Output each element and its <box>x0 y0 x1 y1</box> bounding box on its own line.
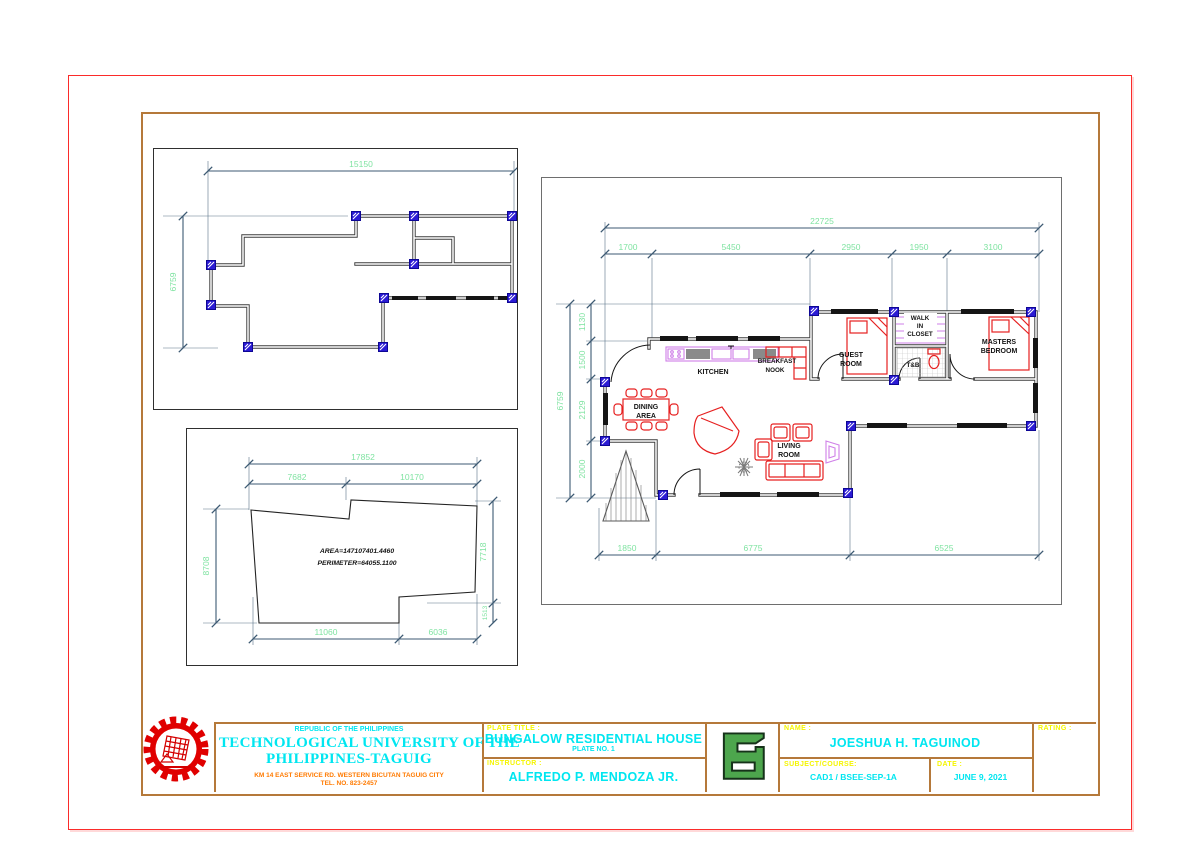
plan-extension-lines <box>556 222 1039 561</box>
lot-plan-panel: 17852 7682 10170 8708 7718 1513 11060 60… <box>186 428 518 666</box>
outline-walls <box>211 216 512 347</box>
dim-lot-left: 8708 <box>201 556 211 575</box>
label-masters-2: BEDROOM <box>981 348 1018 355</box>
lot-area-text: AREA=147107401.4460 <box>319 548 394 555</box>
dim-lot-bottom-right: 6036 <box>429 627 448 637</box>
dim-lot-right: 7718 <box>478 542 488 561</box>
university-name-2: PHILIPPINES-TAGUIG <box>219 751 479 768</box>
dim-lot-right-small: 1513 <box>482 605 489 620</box>
label-masters-1: MASTERS <box>982 339 1017 346</box>
label-dining-1: DINING <box>634 404 659 411</box>
dim-left-seg4: 2000 <box>577 459 587 478</box>
plant <box>735 458 753 476</box>
university-name-1: TECHNOLOGICAL UNIVERSITY OF THE <box>219 735 479 752</box>
subject-value: CAD1 / BSEE-SEP-1A <box>778 772 929 782</box>
lot-perimeter-text: PERIMETER=64055.1100 <box>317 560 396 567</box>
floor-plan-panel: 22725 1700 5450 2950 1950 3100 6759 1130… <box>541 177 1062 605</box>
tree <box>603 451 649 521</box>
date-label: DATE : <box>937 761 962 768</box>
dim-left-seg2: 1500 <box>577 350 587 369</box>
dim-lot-top-right: 10170 <box>400 472 424 482</box>
outline-column-markers <box>207 212 517 352</box>
plate-title: BUNGALOW RESIDENTIAL HOUSE <box>482 732 705 746</box>
label-tb: T&B <box>907 362 920 369</box>
cad-sheet: 15150 6759 <box>0 0 1200 848</box>
g-logo <box>713 726 771 788</box>
dim-top-seg1: 1700 <box>619 242 638 252</box>
dim-bottom-seg2: 6775 <box>744 543 763 553</box>
plate-no: PLATE NO. 1 <box>482 746 705 753</box>
label-breakfast: BREAKFAST <box>758 358 797 365</box>
dim-top-seg2: 5450 <box>722 242 741 252</box>
dim-lot-top-total: 17852 <box>351 452 375 462</box>
label-living-1: LIVING <box>777 443 801 450</box>
label-dining-2: AREA <box>636 413 656 420</box>
rating-label: RATING : <box>1038 725 1072 732</box>
instructor-label: INSTRUCTOR : <box>487 760 542 767</box>
dim-top-seg3: 2950 <box>842 242 861 252</box>
dim-plan-left-total: 6759 <box>555 391 565 410</box>
label-guest-1: GUEST <box>839 352 864 359</box>
dim-top-seg4: 1950 <box>910 242 929 252</box>
plate-title-label: PLATE TITLE : <box>487 725 540 732</box>
university-address: KM 14 EAST SERVICE RD. WESTERN BICUTAN T… <box>219 772 479 779</box>
dim-bottom-seg1: 1850 <box>618 543 637 553</box>
dim-lot-top-left: 7682 <box>288 472 307 482</box>
dim-bottom-seg3: 6525 <box>935 543 954 553</box>
tv-console <box>826 441 839 463</box>
university-tel: TEL. NO. 823-2457 <box>219 780 479 787</box>
plan-column-markers <box>601 307 1036 500</box>
dim-lot-bottom-left: 11060 <box>314 627 337 637</box>
republic-line: REPUBLIC OF THE PHILIPPINES <box>224 726 474 733</box>
instructor-name: ALFREDO P. MENDOZA JR. <box>482 770 705 784</box>
dim-plan-top-total: 22725 <box>810 216 834 226</box>
dim-left-seg3: 2129 <box>577 400 587 419</box>
plan-dimensions: 22725 1700 5450 2950 1950 3100 6759 1130… <box>555 216 1043 559</box>
label-guest-2: ROOM <box>840 361 862 368</box>
dim-outline-height: 6759 <box>168 272 178 291</box>
dim-outline-width: 15150 <box>349 159 373 169</box>
name-label: NAME : <box>784 725 811 732</box>
label-walk: WALK <box>911 315 930 322</box>
label-kitchen: KITCHEN <box>697 369 728 376</box>
tup-logo <box>143 710 209 788</box>
dim-top-seg5: 3100 <box>984 242 1003 252</box>
label-living-2: ROOM <box>778 452 800 459</box>
outline-dimensions: 15150 6759 <box>163 159 517 352</box>
label-nook: NOOK <box>766 367 785 374</box>
date-value: JUNE 9, 2021 <box>929 772 1032 782</box>
grand-piano <box>694 407 739 454</box>
label-in: IN <box>917 323 924 330</box>
student-name: JOESHUA H. TAGUINOD <box>778 736 1032 750</box>
label-closet: CLOSET <box>907 331 933 338</box>
dim-left-seg1: 1130 <box>577 313 587 332</box>
room-labels: KITCHEN BREAKFAST NOOK DINING AREA LIVIN… <box>634 315 1018 459</box>
outline-plan-panel: 15150 6759 <box>153 148 518 410</box>
toilet-bath <box>897 348 945 377</box>
subject-label: SUBJECT/COURSE: <box>784 761 857 768</box>
